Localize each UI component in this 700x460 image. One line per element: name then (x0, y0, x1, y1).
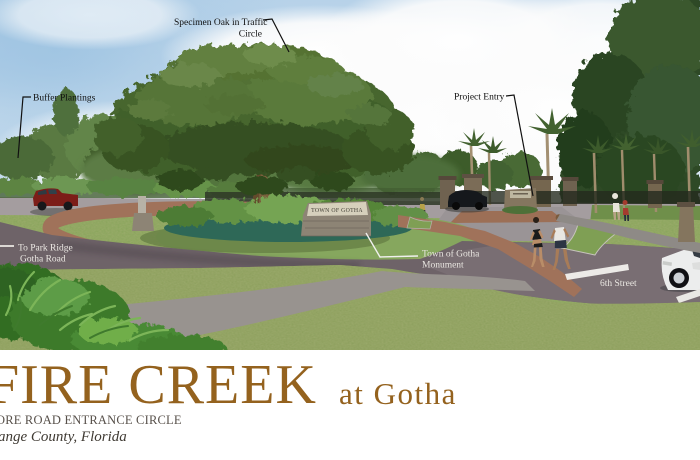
svg-text:Monument: Monument (422, 261, 464, 271)
svg-text:ORE ROAD ENTRANCE CIRCLE: ORE ROAD ENTRANCE CIRCLE (0, 413, 182, 427)
svg-text:Project Entry: Project Entry (454, 93, 505, 103)
svg-text:Buffer Plantings: Buffer Plantings (33, 93, 96, 104)
svg-text:FIRE CREEK: FIRE CREEK (0, 354, 317, 416)
svg-text:ange County, Florida: ange County, Florida (0, 429, 127, 445)
svg-text:Gotha Road: Gotha Road (20, 255, 66, 265)
svg-text:6th Street: 6th Street (600, 279, 637, 289)
svg-text:Specimen Oak in Traffic: Specimen Oak in Traffic (174, 17, 268, 28)
svg-text:To Park Ridge: To Park Ridge (18, 244, 73, 254)
svg-text:at Gotha: at Gotha (339, 376, 457, 411)
svg-text:TOWN OF GOTHA: TOWN OF GOTHA (311, 208, 363, 214)
svg-text:Town of Gotha: Town of Gotha (422, 249, 480, 260)
svg-text:Circle: Circle (239, 30, 262, 40)
